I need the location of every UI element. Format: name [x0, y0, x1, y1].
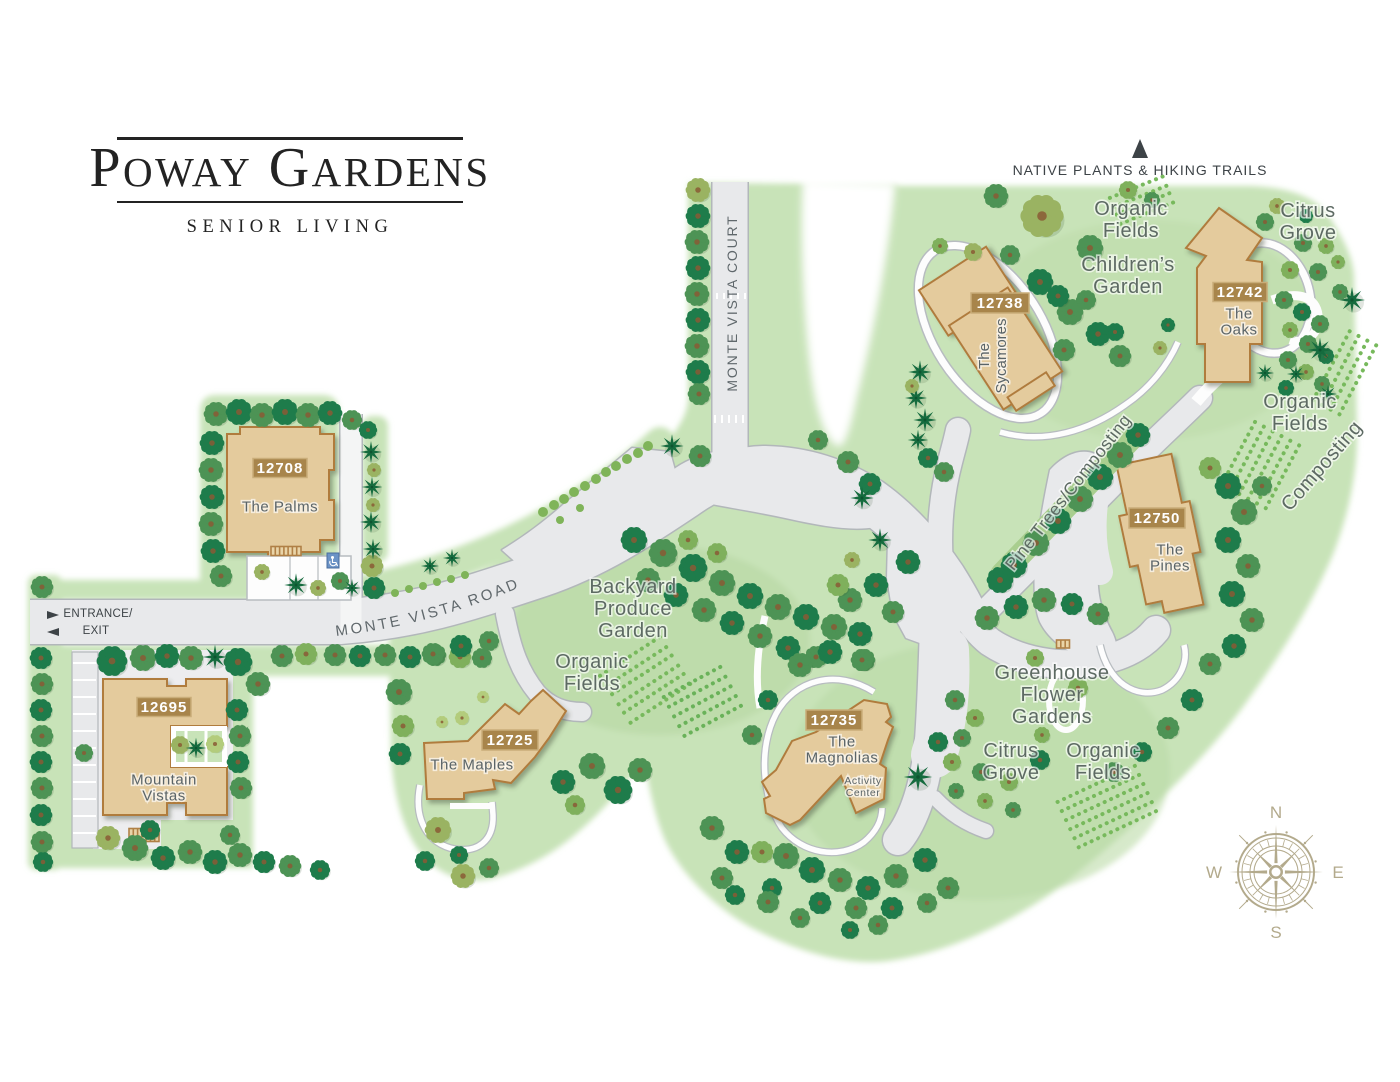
svg-text:NATIVE PLANTS & HIKING TRAILS: NATIVE PLANTS & HIKING TRAILS — [1013, 162, 1268, 178]
svg-text:W: W — [1206, 863, 1222, 882]
svg-text:12738: 12738 — [977, 295, 1024, 312]
svg-text:OrganicFields: OrganicFields — [1263, 391, 1337, 435]
svg-text:12742: 12742 — [1217, 284, 1264, 301]
svg-text:S: S — [1270, 923, 1281, 942]
svg-text:ENTRANCE/: ENTRANCE/ — [63, 608, 133, 620]
svg-text:OrganicFields: OrganicFields — [1066, 740, 1140, 784]
svg-text:OrganicFields: OrganicFields — [555, 651, 629, 695]
svg-text:The Maples: The Maples — [430, 757, 513, 774]
svg-text:BackyardProduceGarden: BackyardProduceGarden — [589, 576, 676, 642]
svg-text:E: E — [1332, 863, 1343, 882]
svg-text:12708: 12708 — [257, 460, 304, 477]
svg-text:The Palms: The Palms — [242, 499, 318, 516]
svg-text:12695: 12695 — [141, 699, 188, 716]
svg-text:12725: 12725 — [487, 732, 534, 749]
svg-text:CitrusGrove: CitrusGrove — [1280, 200, 1337, 244]
svg-text:ActivityCenter: ActivityCenter — [844, 775, 882, 799]
svg-text:EXIT: EXIT — [83, 625, 110, 637]
svg-text:MONTE VISTA COURT: MONTE VISTA COURT — [724, 214, 740, 391]
svg-text:N: N — [1270, 803, 1282, 822]
svg-text:12750: 12750 — [1134, 510, 1181, 527]
svg-text:Children’sGarden: Children’sGarden — [1081, 254, 1175, 298]
svg-text:OrganicFields: OrganicFields — [1094, 198, 1168, 242]
svg-text:12735: 12735 — [811, 712, 858, 729]
svg-text:TheOaks: TheOaks — [1220, 306, 1257, 339]
svg-text:CitrusGrove: CitrusGrove — [983, 740, 1040, 784]
